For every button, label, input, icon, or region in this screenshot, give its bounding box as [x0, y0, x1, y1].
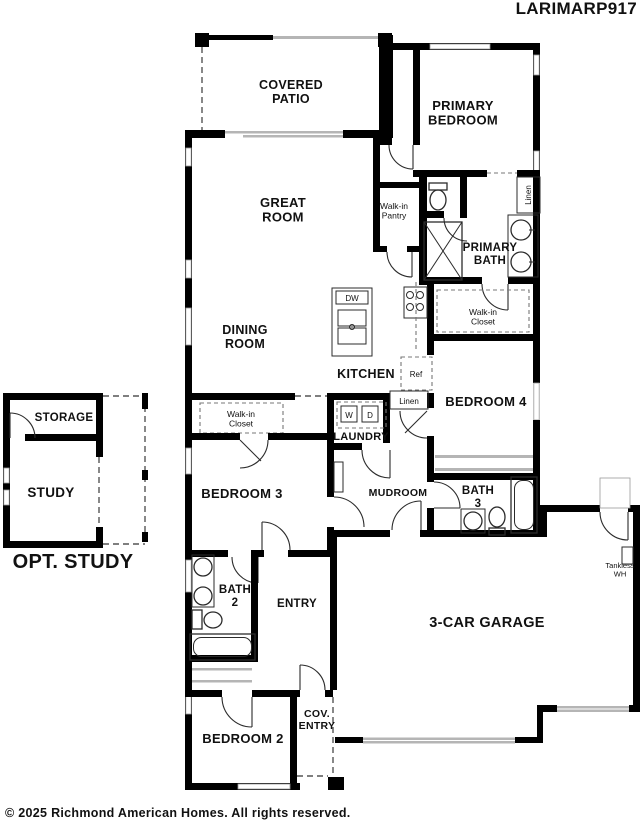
label-tankless-wh: TanklessWH [605, 561, 634, 578]
option-label-opt-study: OPT. STUDY [13, 551, 134, 573]
room-label-covered-patio: COVEREDPATIO [259, 78, 323, 106]
room-label-bath-3: BATH3 [462, 485, 494, 510]
room-label-cov-entry: COV.ENTRY [299, 708, 336, 732]
bath2-fixtures [190, 555, 255, 660]
walls [3, 33, 640, 790]
room-label-bath-2: BATH2 [219, 584, 251, 609]
toilet-primary [429, 183, 447, 210]
label-dishwasher: DW [345, 294, 359, 303]
mudroom-bench [334, 462, 343, 492]
label-washer: W [345, 411, 353, 420]
room-label-walk-in-closet-primary: Walk-inCloset [469, 307, 497, 327]
floor-plan-drawing: LARIMARP917 COVEREDPATIO PRIMARYBEDROOM … [0, 0, 640, 825]
plan-title: LARIMARP917 [516, 0, 637, 18]
room-label-laundry: LAUNDRY [333, 431, 389, 443]
label-refrigerator: Ref [410, 370, 423, 379]
room-label-primary-bedroom: PRIMARYBEDROOM [428, 98, 498, 128]
room-label-storage: STORAGE [35, 412, 94, 424]
room-label-bedroom-3: BEDROOM 3 [201, 486, 282, 501]
room-label-great-room: GREATROOM [260, 195, 306, 225]
room-label-kitchen: KITCHEN [337, 367, 395, 381]
label-linen-bath: Linen [524, 185, 533, 205]
room-label-walk-in-closet-bedroom3: Walk-inCloset [227, 409, 255, 429]
copyright-text: © 2025 Richmond American Homes. All righ… [5, 806, 351, 820]
label-linen-hall: Linen [399, 397, 419, 406]
room-label-study: STUDY [27, 485, 74, 500]
room-label-dining-room: DININGROOM [222, 323, 268, 351]
label-dryer: D [367, 411, 373, 420]
room-label-bedroom-2: BEDROOM 2 [202, 731, 283, 746]
room-label-bedroom-4: BEDROOM 4 [445, 394, 527, 409]
room-label-entry: ENTRY [277, 598, 317, 610]
room-label-primary-bath: PRIMARYBATH [463, 242, 518, 267]
floor-plan-page: LARIMARP917 COVEREDPATIO PRIMARYBEDROOM … [0, 0, 640, 825]
shower-primary [424, 222, 462, 280]
room-label-walk-in-pantry: Walk-inPantry [380, 201, 408, 221]
room-label-garage: 3-CAR GARAGE [429, 615, 545, 631]
room-label-mudroom: MUDROOM [369, 487, 428, 499]
